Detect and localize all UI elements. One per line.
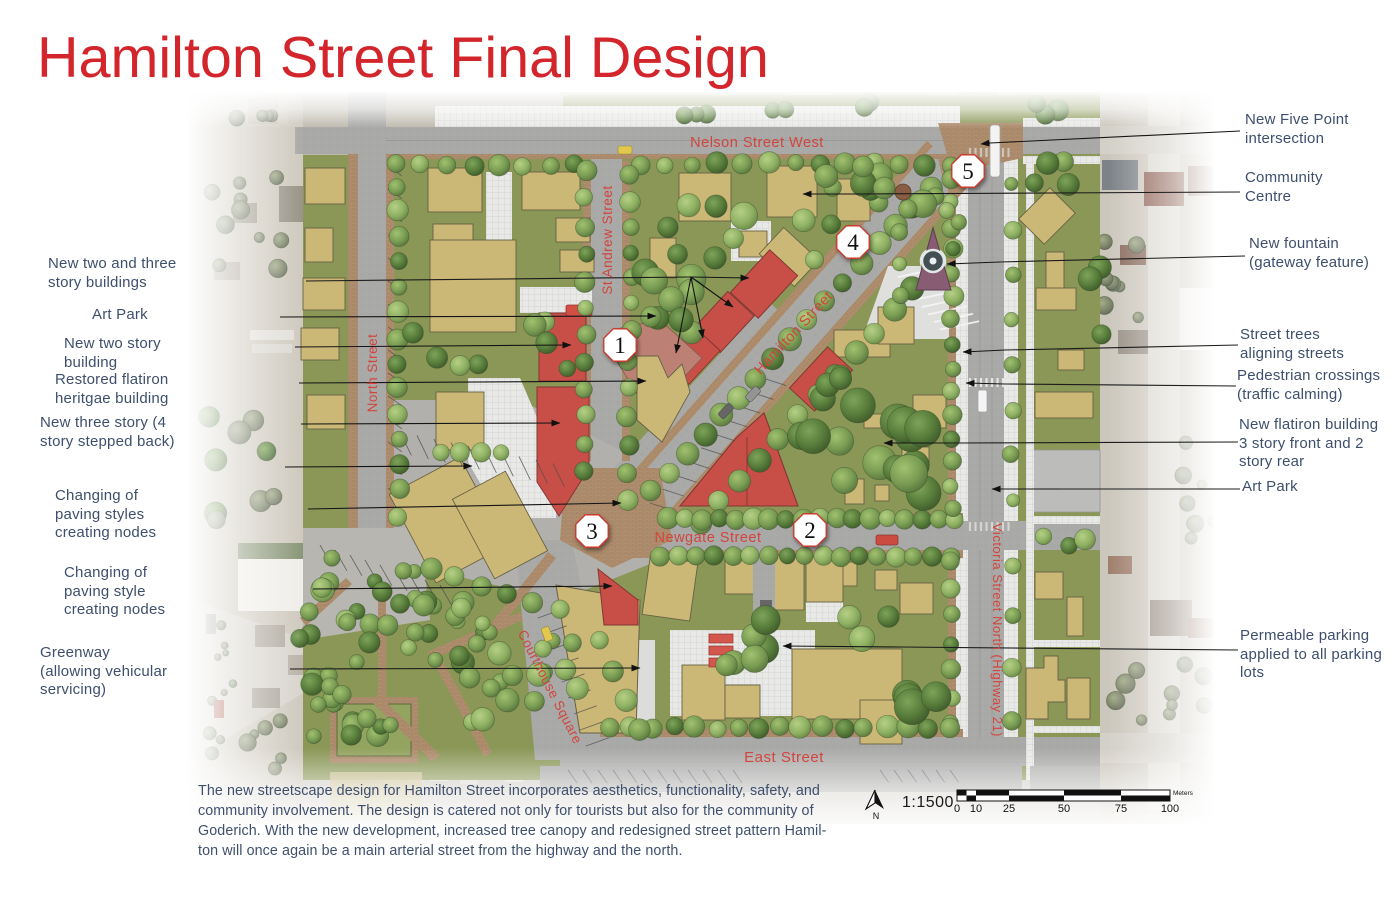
svg-text:10: 10 (970, 803, 982, 815)
svg-text:Victoria Street North (Highway: Victoria Street North (Highway 21) (990, 523, 1005, 737)
svg-text:3: 3 (586, 519, 598, 544)
svg-text:1:1500: 1:1500 (902, 794, 954, 811)
svg-text:0: 0 (954, 803, 960, 815)
svg-text:75: 75 (1115, 803, 1127, 815)
svg-text:100: 100 (1161, 803, 1179, 815)
svg-text:1: 1 (614, 333, 626, 358)
svg-text:4: 4 (847, 230, 859, 255)
svg-text:Meters: Meters (1173, 790, 1194, 797)
svg-text:5: 5 (962, 159, 974, 184)
svg-text:2: 2 (804, 518, 816, 543)
svg-text:Newgate Street: Newgate Street (655, 530, 762, 546)
svg-text:N: N (873, 811, 880, 821)
svg-text:50: 50 (1058, 803, 1070, 815)
svg-text:East Street: East Street (744, 749, 824, 766)
svg-text:St Andrew Street: St Andrew Street (600, 185, 615, 294)
svg-text:25: 25 (1003, 803, 1015, 815)
svg-text:North Street: North Street (365, 334, 380, 413)
svg-text:Nelson Street West: Nelson Street West (690, 135, 824, 151)
